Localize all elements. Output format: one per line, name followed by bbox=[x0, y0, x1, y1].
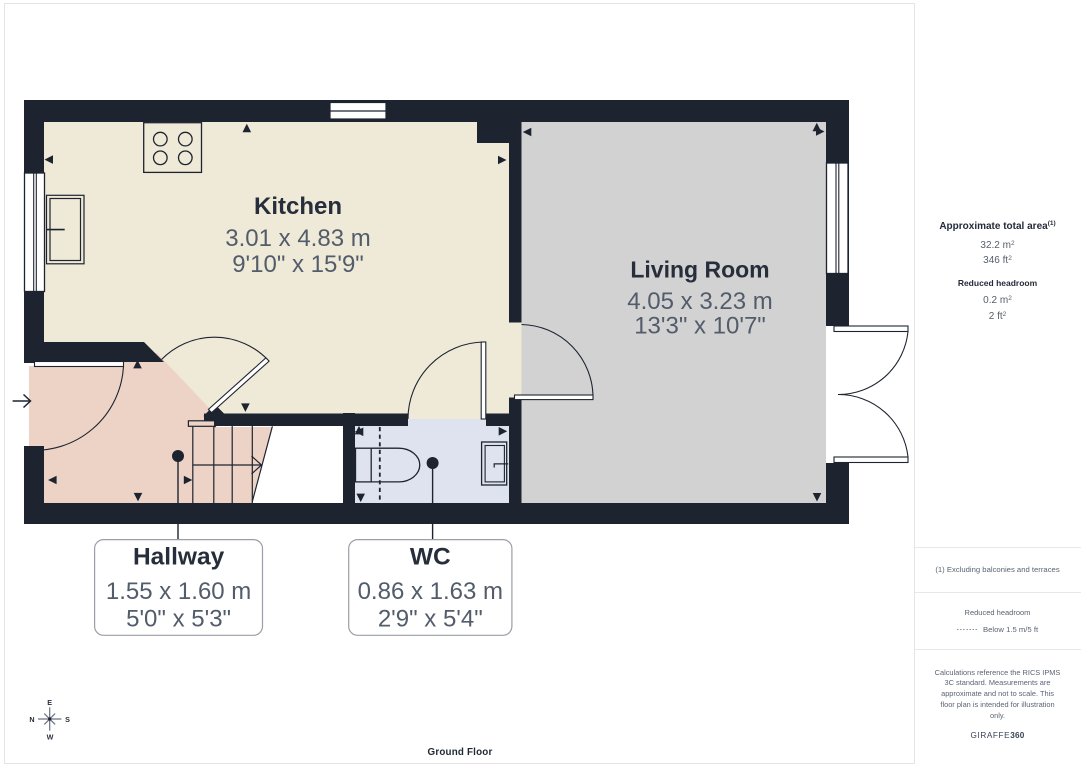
svg-text:4.05 x 3.23 m: 4.05 x 3.23 m bbox=[627, 288, 772, 315]
svg-text:Hallway: Hallway bbox=[133, 544, 225, 571]
svg-text:2'9" x 5'4": 2'9" x 5'4" bbox=[378, 606, 483, 633]
svg-text:S: S bbox=[65, 715, 70, 724]
svg-text:W: W bbox=[47, 733, 54, 742]
svg-text:WC: WC bbox=[410, 544, 451, 571]
svg-text:Living Room: Living Room bbox=[630, 257, 769, 283]
svg-text:5'0" x 5'3": 5'0" x 5'3" bbox=[126, 606, 231, 633]
svg-text:N: N bbox=[29, 715, 34, 724]
svg-text:13'3" x 10'7": 13'3" x 10'7" bbox=[634, 313, 766, 340]
svg-text:0.86 x 1.63 m: 0.86 x 1.63 m bbox=[358, 578, 503, 605]
svg-text:E: E bbox=[47, 698, 52, 707]
svg-text:Kitchen: Kitchen bbox=[254, 193, 342, 220]
svg-text:1.55 x 1.60 m: 1.55 x 1.60 m bbox=[106, 578, 251, 605]
svg-text:Ground Floor: Ground Floor bbox=[428, 747, 493, 758]
svg-text:9'10" x 15'9": 9'10" x 15'9" bbox=[232, 251, 364, 278]
svg-text:3.01 x 4.83 m: 3.01 x 4.83 m bbox=[225, 225, 370, 252]
